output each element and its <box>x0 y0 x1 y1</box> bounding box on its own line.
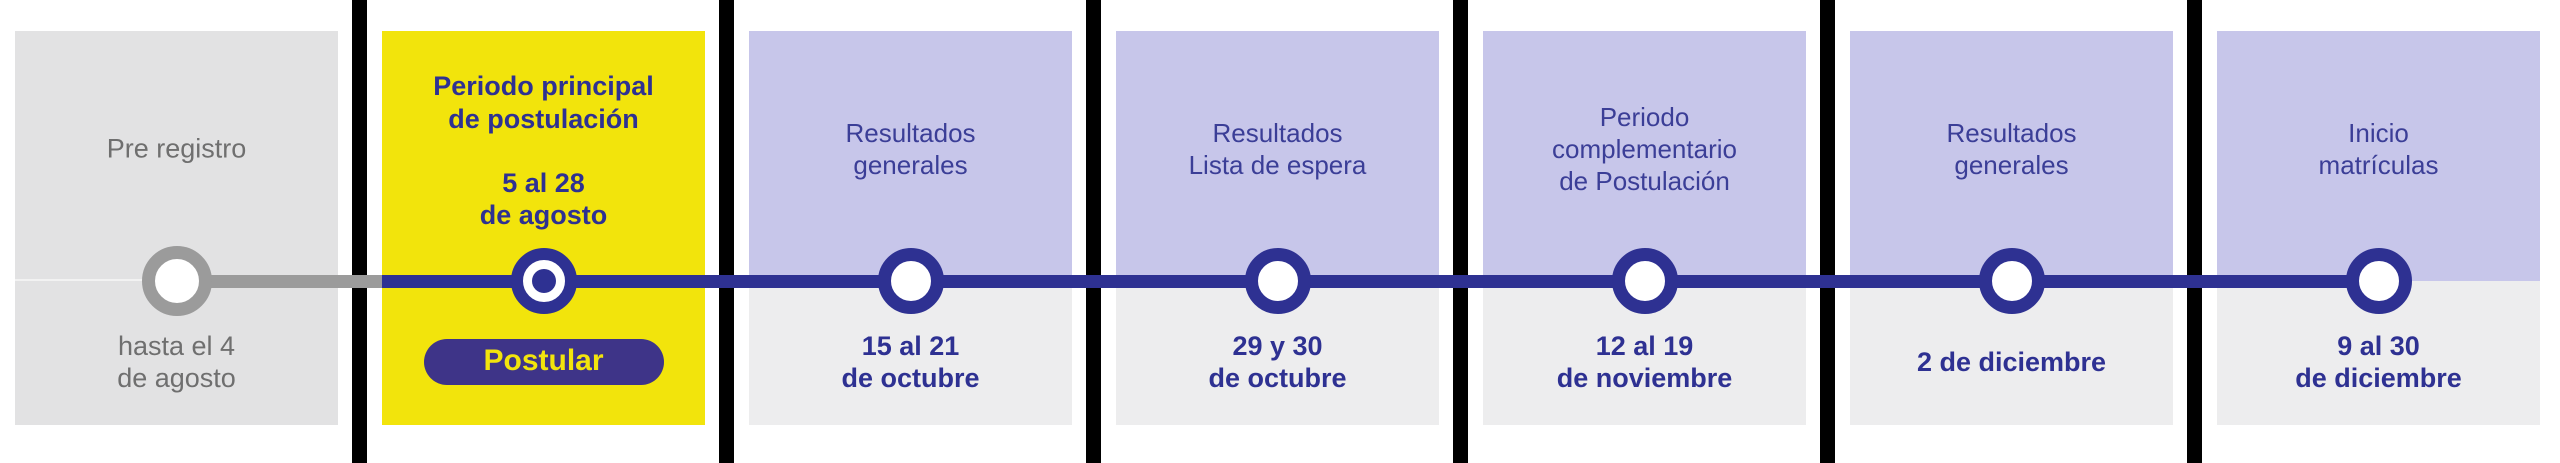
divider-bar-6 <box>2187 0 2202 463</box>
timeline-marker-resultados-generales-2-icon <box>1979 248 2045 314</box>
stage-date-periodo-complementario: 12 al 19 de noviembre <box>1483 330 1806 394</box>
stage-date-resultados-generales-2: 2 de diciembre <box>1850 346 2173 378</box>
timeline-marker-active-dot <box>532 269 556 293</box>
stage-title-periodo-principal: Periodo principal de postulación <box>382 70 705 136</box>
divider-bar-3 <box>1086 0 1101 463</box>
stage-panel-pre-registro: Pre registro hasta el 4 de agosto <box>15 31 338 425</box>
timeline-marker-inicio-matriculas-icon <box>2346 248 2412 314</box>
stage-title-pre-registro: Pre registro <box>15 133 338 166</box>
timeline-marker-lista-de-espera-icon <box>1245 248 1311 314</box>
stage-date-lista-de-espera: 29 y 30 de octubre <box>1116 330 1439 394</box>
stage-panel-lista-de-espera: Resultados Lista de espera 29 y 30 de oc… <box>1116 31 1439 425</box>
divider-bar-2 <box>719 0 734 463</box>
timeline-marker-resultados-generales-1-icon <box>878 248 944 314</box>
stage-title-lista-de-espera: Resultados Lista de espera <box>1116 117 1439 181</box>
stage-date-periodo-principal: 5 al 28 de agosto <box>382 167 705 231</box>
postular-button[interactable]: Postular <box>424 339 664 385</box>
divider-bar-4 <box>1453 0 1468 463</box>
divider-bar-1 <box>352 0 367 463</box>
stage-panel-resultados-generales-2: Resultados generales 2 de diciembre <box>1850 31 2173 425</box>
stage-date-resultados-generales-1: 15 al 21 de octubre <box>749 330 1072 394</box>
timeline-connector-active <box>382 275 2379 288</box>
stage-panel-resultados-generales-1: Resultados generales 15 al 21 de octubre <box>749 31 1072 425</box>
divider-bar-5 <box>1820 0 1835 463</box>
stage-title-resultados-generales-2: Resultados generales <box>1850 117 2173 181</box>
timeline-root: Pre registro hasta el 4 de agosto Period… <box>0 0 2560 463</box>
stage-title-inicio-matriculas: Inicio matrículas <box>2217 117 2540 181</box>
stage-panel-periodo-principal: Periodo principal de postulación 5 al 28… <box>382 31 705 425</box>
stage-date-pre-registro: hasta el 4 de agosto <box>15 330 338 394</box>
stage-date-inicio-matriculas: 9 al 30 de diciembre <box>2217 330 2540 394</box>
stage-panel-periodo-complementario: Periodo complementario de Postulación 12… <box>1483 31 1806 425</box>
stage-title-periodo-complementario: Periodo complementario de Postulación <box>1483 101 1806 197</box>
timeline-marker-pre-registro-icon <box>142 246 212 316</box>
timeline-marker-periodo-complementario-icon <box>1612 248 1678 314</box>
timeline-marker-active-icon <box>511 248 577 314</box>
stage-title-resultados-generales-1: Resultados generales <box>749 117 1072 181</box>
stage-panel-inicio-matriculas: Inicio matrículas 9 al 30 de diciembre <box>2217 31 2540 425</box>
